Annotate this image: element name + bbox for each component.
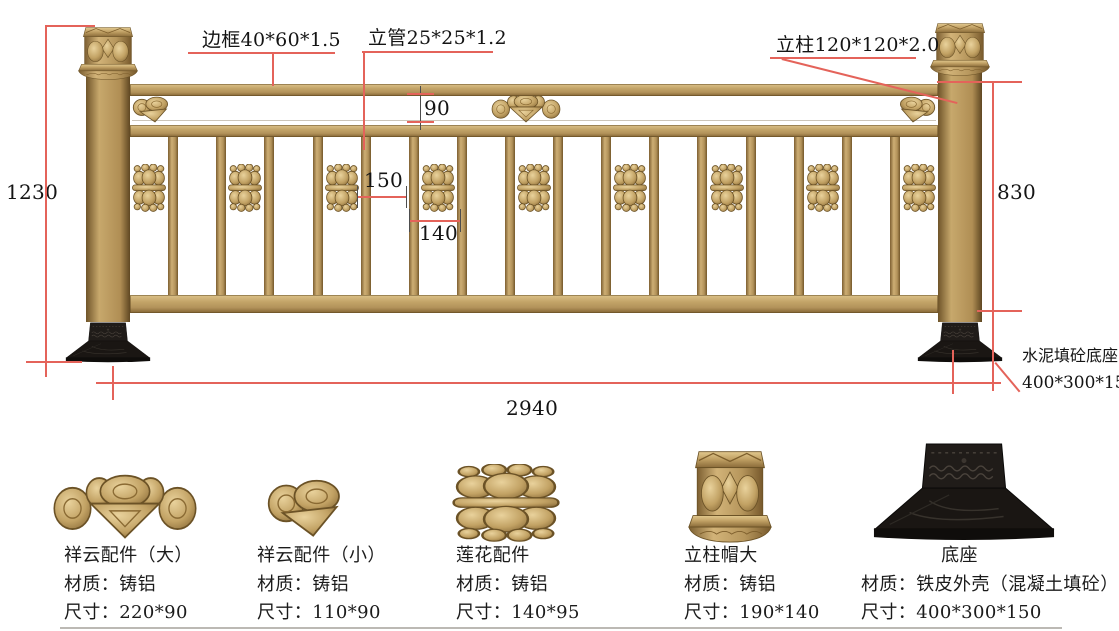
- picket: [264, 137, 274, 295]
- component-size: 尺寸：220*90: [64, 603, 188, 623]
- leader-frame-drop: [272, 52, 274, 86]
- top-rail: [130, 84, 938, 96]
- dim-line-150-left-tick: [357, 186, 358, 208]
- component-material: 材质：铁皮外壳（混凝土填砼）: [861, 575, 1119, 595]
- middle-rail: [130, 125, 938, 137]
- picket: [168, 137, 178, 295]
- left-post-cap: [78, 26, 138, 80]
- dim-total-height: 1230: [6, 181, 58, 204]
- dim-line-150-right-tick: [406, 186, 407, 208]
- picket: [890, 137, 900, 295]
- dim-line-830-vertical: [992, 81, 994, 391]
- leader-pipe-underline: [362, 51, 493, 53]
- picket: [842, 137, 852, 295]
- dim-line-1230-top-tick: [45, 25, 95, 27]
- label-pipe-spec: 立管25*25*1.2: [368, 28, 507, 50]
- lotus-ornament: [228, 164, 262, 212]
- lotus-ornament: [806, 164, 840, 212]
- guardrail-spec-sheet: 1230 边框40*60*1.5 立管25*25*1.2 立柱120*120*2…: [0, 0, 1119, 631]
- bottom-rail: [130, 295, 938, 313]
- dim-picket-gap: 150: [364, 169, 403, 192]
- dim-line-140-left-tick: [409, 209, 410, 232]
- component-size: 尺寸：140*95: [456, 603, 580, 623]
- dim-line-140: [409, 220, 461, 222]
- component-image-lotus-icon: [452, 464, 560, 542]
- component-name: 祥云配件（大）: [64, 546, 193, 566]
- dim-line-90-bottom-tick: [407, 121, 434, 123]
- right-post: [938, 72, 982, 322]
- leader-pipe-drop: [363, 51, 365, 150]
- left-post-base: [64, 322, 152, 363]
- picket: [505, 137, 515, 295]
- picket: [361, 137, 371, 295]
- left-post: [86, 76, 130, 322]
- dim-panel-height: 830: [997, 181, 1036, 204]
- dim-line-150: [358, 196, 407, 198]
- label-base-note: 水泥填砼底座: [1022, 347, 1118, 365]
- band-shadow-line: [132, 120, 936, 121]
- dim-line-1230-bottom-tick: [26, 361, 82, 363]
- leader-post-underline: [770, 57, 916, 59]
- component-material: 材质：铸铝: [257, 575, 349, 595]
- picket: [409, 137, 419, 295]
- component-material: 材质：铸铝: [456, 575, 548, 595]
- component-image-post-cap-icon: [688, 449, 772, 543]
- picket: [601, 137, 611, 295]
- component-name: 立柱帽大: [684, 546, 758, 566]
- component-image-base-icon: [870, 442, 1058, 542]
- picket: [457, 137, 467, 295]
- picket: [313, 137, 323, 295]
- component-name: 莲花配件: [456, 546, 530, 566]
- lotus-ornament: [710, 164, 744, 212]
- picket: [216, 137, 226, 295]
- label-base-size: 400*300*150: [1022, 374, 1119, 394]
- component-name: 底座: [861, 546, 1058, 566]
- lotus-ornament: [421, 164, 455, 212]
- lotus-ornament: [517, 164, 551, 212]
- dim-line-2940-left-tick: [112, 366, 114, 400]
- picket: [746, 137, 756, 295]
- lotus-ornament: [325, 164, 359, 212]
- dim-line-830-top-tick: [937, 81, 1022, 83]
- leader-base-diagonal: [995, 362, 1021, 392]
- cloud-ornament-left: [131, 95, 171, 123]
- label-post-spec: 立柱120*120*2.0: [776, 35, 940, 57]
- dim-line-830-bottom-tick: [977, 310, 1022, 312]
- right-post-base: [916, 322, 1004, 363]
- label-frame-spec: 边框40*60*1.5: [202, 30, 341, 52]
- picket: [697, 137, 707, 295]
- component-image-cloud-small-icon: [264, 476, 346, 538]
- dim-band-height: 90: [424, 97, 450, 120]
- component-material: 材质：铸铝: [64, 575, 156, 595]
- component-image-cloud-large-icon: [50, 472, 200, 540]
- dim-line-90-top-tick: [407, 93, 434, 95]
- lotus-ornament: [613, 164, 647, 212]
- dim-total-width: 2940: [506, 397, 558, 420]
- dim-line-2940-right-tick: [952, 350, 954, 394]
- lotus-ornament: [902, 164, 936, 212]
- bottom-divider-line: [60, 627, 1062, 629]
- cloud-ornament-right: [897, 95, 937, 123]
- cloud-ornament-center: [490, 93, 562, 123]
- picket: [794, 137, 804, 295]
- component-size: 尺寸：400*300*150: [861, 603, 1042, 623]
- picket: [649, 137, 659, 295]
- component-material: 材质：铸铝: [684, 575, 776, 595]
- dim-line-140-right-tick: [460, 209, 461, 232]
- leader-frame-underline: [188, 52, 335, 54]
- picket: [553, 137, 563, 295]
- dim-line-1230-vertical: [45, 25, 47, 377]
- component-name: 祥云配件（小）: [257, 546, 386, 566]
- component-size: 尺寸：190*140: [684, 603, 820, 623]
- dim-lotus-gap: 140: [419, 222, 458, 245]
- dim-line-2940: [96, 382, 1001, 384]
- component-size: 尺寸：110*90: [257, 603, 381, 623]
- lotus-ornament: [132, 164, 166, 212]
